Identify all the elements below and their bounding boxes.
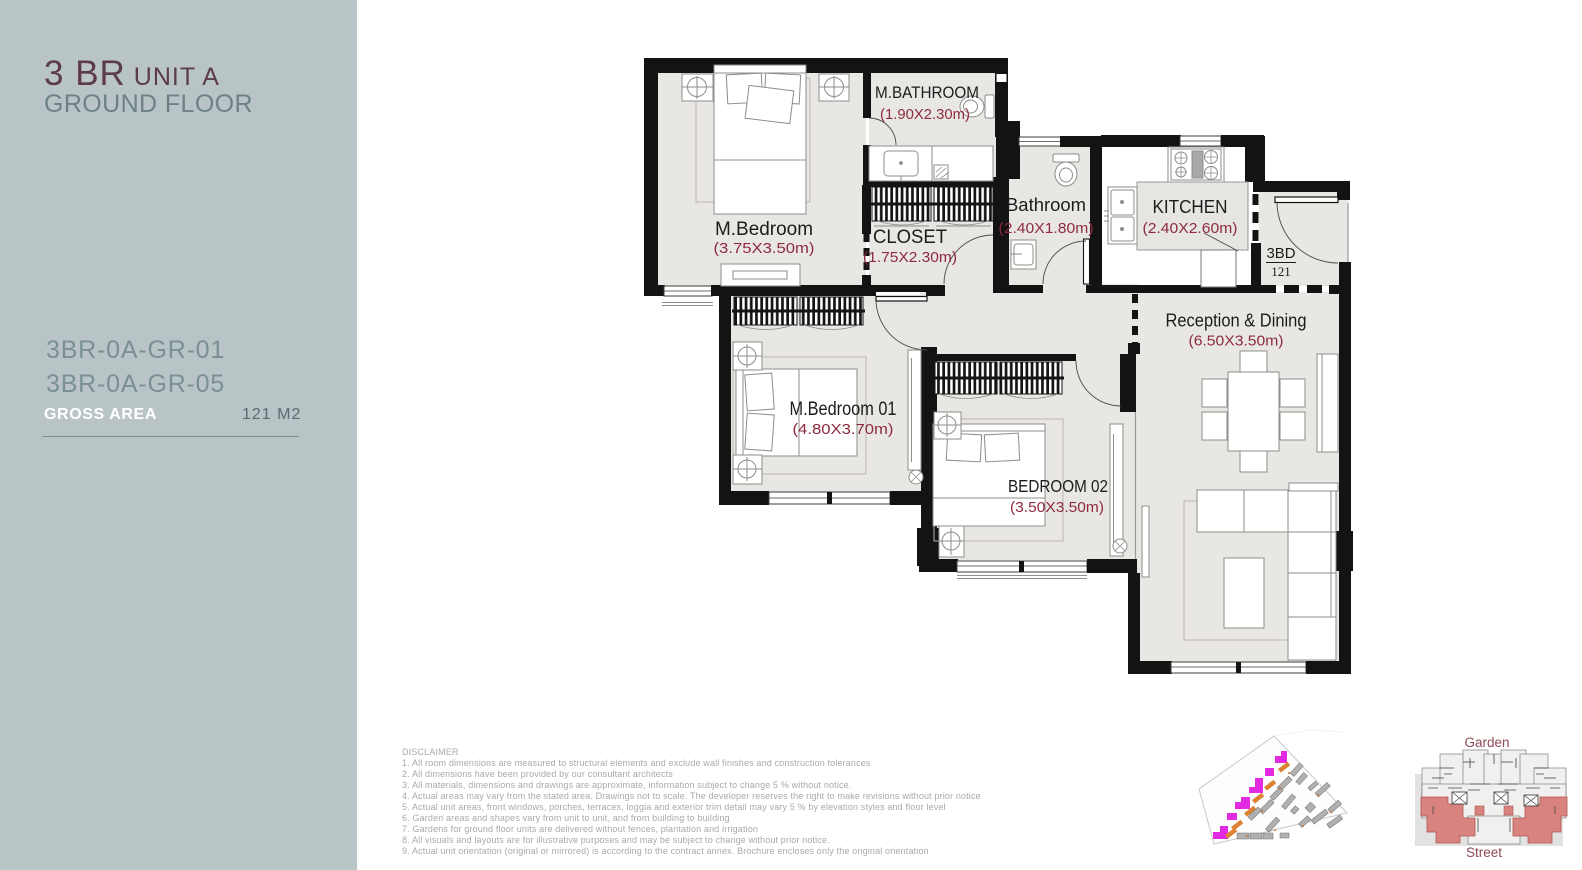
svg-text:BEDROOM 02: BEDROOM 02 — [1008, 476, 1108, 496]
svg-text:KITCHEN: KITCHEN — [1153, 197, 1228, 217]
svg-text:(2.40X1.80m): (2.40X1.80m) — [999, 221, 1094, 237]
svg-text:M.Bedroom: M.Bedroom — [715, 219, 813, 240]
svg-text:Bathroom: Bathroom — [1006, 195, 1086, 215]
svg-text:M.Bedroom 01: M.Bedroom 01 — [790, 399, 897, 420]
svg-text:(2.40X2.60m): (2.40X2.60m) — [1143, 220, 1238, 237]
svg-text:Street: Street — [1466, 845, 1502, 860]
svg-text:(3.50X3.50m): (3.50X3.50m) — [1010, 499, 1104, 516]
svg-text:(4.80X3.70m): (4.80X3.70m) — [793, 421, 894, 438]
svg-text:(3.75X3.50m): (3.75X3.50m) — [714, 240, 815, 257]
svg-text:M.BATHROOM: M.BATHROOM — [875, 83, 979, 102]
svg-text:CLOSET: CLOSET — [873, 227, 947, 248]
svg-text:(6.50X3.50m): (6.50X3.50m) — [1189, 333, 1284, 350]
svg-text:Garden: Garden — [1464, 735, 1509, 750]
svg-text:121: 121 — [1271, 264, 1291, 279]
svg-text:3BD: 3BD — [1267, 245, 1296, 262]
svg-text:(1.90X2.30m): (1.90X2.30m) — [880, 107, 970, 123]
svg-text:Reception & Dining: Reception & Dining — [1166, 310, 1307, 331]
svg-text:(1.75X2.30m): (1.75X2.30m) — [863, 249, 957, 266]
